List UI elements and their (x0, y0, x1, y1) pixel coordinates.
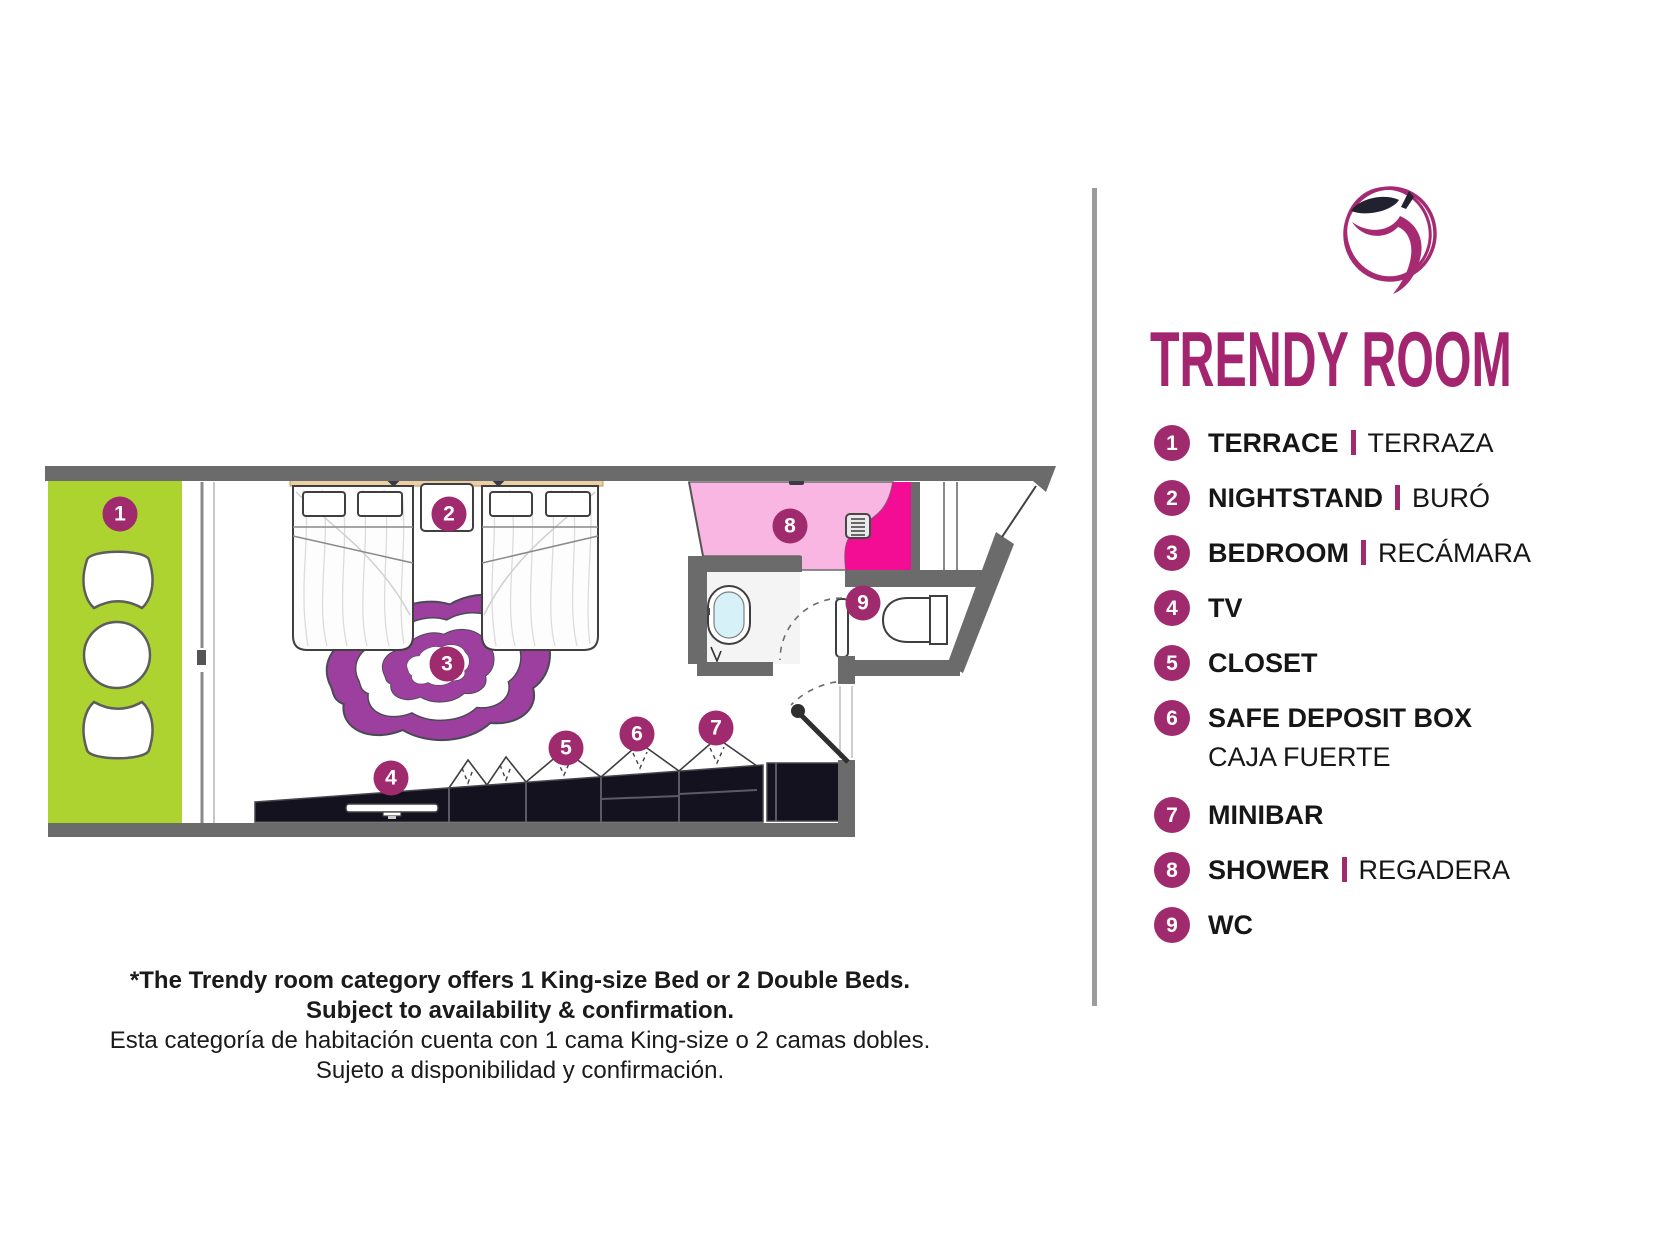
plan-marker-9: 9 (846, 586, 881, 621)
pillow (358, 492, 402, 516)
footnote-bold-line: Subject to availability & confirmation. (50, 996, 990, 1026)
divider-line (1092, 188, 1097, 1006)
legend-item: 6 SAFE DEPOSIT BOX CAJA FUERTE (1154, 700, 1624, 778)
legend-number-badge: 3 (1154, 535, 1190, 571)
legend-number-badge: 9 (1154, 907, 1190, 943)
legend-number-badge: 5 (1154, 645, 1190, 681)
legend-number-badge: 2 (1154, 480, 1190, 516)
legend-separator (1342, 857, 1347, 882)
wall-shower-right-bottom (845, 570, 985, 587)
legend-label-en: MINIBAR (1208, 800, 1324, 830)
legend-number-badge: 6 (1154, 700, 1190, 736)
legend-label-es: TERRAZA (1368, 428, 1494, 458)
wall-vanity-bottom (697, 662, 773, 676)
terrace-table (84, 622, 150, 688)
legend-label-en: TV (1208, 593, 1243, 623)
legend-number-badge: 8 (1154, 852, 1190, 888)
pillow (546, 492, 590, 516)
plan-marker-5: 5 (549, 731, 584, 766)
legend-item: 3 BEDROOMRECÁMARA (1154, 535, 1624, 571)
terrace-area (48, 481, 214, 823)
legend-label-en: NIGHTSTAND (1208, 483, 1383, 513)
legend-label-es: REGADERA (1359, 855, 1511, 885)
footnote: *The Trendy room category offers 1 King-… (50, 966, 990, 1086)
legend-item: 1 TERRACETERRAZA (1154, 425, 1624, 461)
plan-marker-1: 1 (103, 497, 138, 532)
footnote-regular-line: Sujeto a disponibilidad y confirmación. (50, 1056, 990, 1086)
toilet (883, 596, 947, 644)
legend-number-badge: 4 (1154, 590, 1190, 626)
console-unit (255, 738, 840, 822)
legend-label-en: CLOSET (1208, 648, 1318, 678)
legend-label-en: SAFE DEPOSIT BOX (1208, 703, 1472, 733)
footnote-regular-line: Esta categoría de habitación cuenta con … (50, 1026, 990, 1056)
bed-1 (293, 486, 413, 650)
legend-item: 2 NIGHTSTANDBURÓ (1154, 480, 1624, 516)
legend-item: 5 CLOSET (1154, 645, 1624, 681)
legend-label-es-line2: CAJA FUERTE (1208, 736, 1472, 778)
sliding-door-handle (197, 650, 206, 665)
plan-marker-3: 3 (430, 647, 465, 682)
wall-entry-side (838, 760, 855, 837)
pillow (303, 492, 345, 516)
legend-label-en: BEDROOM (1208, 538, 1349, 568)
plan-marker-8: 8 (773, 509, 808, 544)
legend-item: 4 TV (1154, 590, 1624, 626)
plan-marker-6: 6 (620, 717, 655, 752)
legend-separator (1361, 540, 1366, 565)
legend-number-badge: 1 (1154, 425, 1190, 461)
wall-wc-bottom (838, 660, 960, 676)
apple-swoosh (1352, 216, 1422, 294)
window-lines (944, 482, 957, 570)
plan-marker-2: 2 (432, 497, 467, 532)
entry-door-handle (791, 704, 805, 718)
infographic-page: 123456789 TRENDY ROOM 1 TERRACETERRAZA 2… (0, 0, 1667, 1250)
wall-shower-left-bottom (688, 556, 802, 572)
plan-marker-7: 7 (699, 711, 734, 746)
legend-item: 9 WC (1154, 907, 1624, 943)
legend: 1 TERRACETERRAZA 2 NIGHTSTANDBURÓ 3 BEDR… (1154, 425, 1624, 962)
legend-label-es: RECÁMARA (1378, 538, 1531, 568)
wall-shower-right (911, 482, 920, 572)
legend-separator (1351, 430, 1356, 455)
legend-number-badge: 7 (1154, 797, 1190, 833)
page-title: TRENDY ROOM (1150, 320, 1512, 398)
terrace-chair-bottom (83, 702, 152, 758)
balcony-edge-line (1002, 486, 1036, 537)
wall-bottom (48, 823, 855, 837)
entry-door (791, 681, 852, 762)
legend-label-es: BURÓ (1412, 483, 1490, 513)
legend-separator (1395, 485, 1400, 510)
footnote-bold-line: *The Trendy room category offers 1 King-… (50, 966, 990, 996)
legend-label-en: TERRACE (1208, 428, 1339, 458)
bed-2 (482, 486, 598, 650)
legend-label-en: WC (1208, 910, 1253, 940)
pillow (490, 492, 532, 516)
legend-item: 8 SHOWERREGADERA (1154, 852, 1624, 888)
terrace-chair-top (83, 552, 152, 608)
brand-logo (1335, 178, 1441, 294)
legend-label-en: SHOWER (1208, 855, 1330, 885)
wall-vanity-left (688, 572, 707, 664)
console-right-block (767, 763, 840, 821)
legend-item: 7 MINIBAR (1154, 797, 1624, 833)
plan-marker-4: 4 (374, 761, 409, 796)
shower-drain-icon (846, 514, 870, 538)
